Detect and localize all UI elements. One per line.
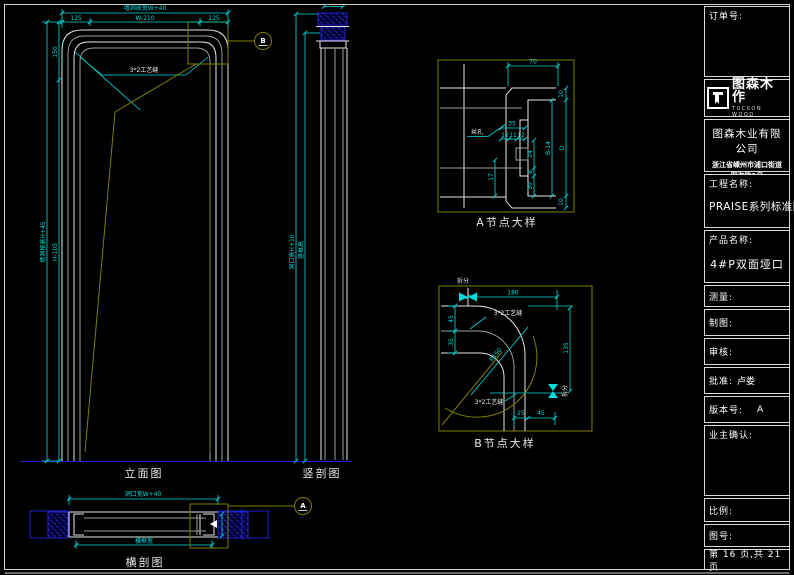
product-row: 产品名称: 4#P双面垭口 [704, 230, 790, 283]
drawing-area: B 墙洞按宽W+40 125 W-210 125 墙洞按高H+45 150 H-… [0, 0, 794, 575]
cross-section-view: A 洞口宽W+40 横框宽 横剖图 [30, 490, 312, 569]
dim-right-seg: 125 [208, 15, 220, 22]
dim-10-top: 10 [558, 90, 565, 98]
detail-b-view: 拆分 拆分 180 45 35 R150 135 25 45 3*2工艺缝 3*… [439, 277, 592, 450]
company-name: 图森木业有限公司 [709, 126, 785, 156]
dim-d: D [559, 145, 566, 150]
dim-17: 17 [488, 173, 495, 181]
dim-wall-height: 墙洞按高H+45 [39, 221, 47, 262]
scale-label: 比例: [709, 504, 733, 517]
brand-name: 图森木作 [732, 78, 787, 104]
dim-35: 35 [508, 121, 516, 128]
split-label-top: 拆分 [457, 277, 469, 285]
sheet-border [5, 5, 790, 574]
dim-opening-width: 洞口宽W+40 [125, 490, 162, 498]
scale-row: 比例: [704, 498, 790, 522]
seam-note: 3*2工艺缝 [130, 66, 159, 74]
cross-section-label: 横剖图 [126, 555, 165, 569]
project-label: 工程名称: [709, 180, 753, 190]
version-row: 版本号: A [704, 396, 790, 423]
detail-b-label: B节点大样 [474, 436, 536, 450]
cad-drawing-page: B 墙洞按宽W+40 125 W-210 125 墙洞按高H+45 150 H-… [0, 0, 794, 575]
approve-value: 卢娄 [737, 374, 755, 387]
measure-row: 测量: [704, 285, 790, 307]
dim-wall-width: 墙洞按宽W+40 [124, 4, 167, 12]
measure-label: 测量: [709, 290, 733, 303]
version-label: 版本号: [709, 403, 743, 416]
drawing-number-row: 图号: [704, 524, 790, 547]
review-row: 审核: [704, 338, 790, 365]
review-label: 审核: [709, 345, 733, 358]
seam-note-top: 3*2工艺缝 [494, 309, 523, 317]
dim-frame-width: 横框宽 [135, 537, 153, 545]
dim-opening-height: 洞口高H+10 [288, 234, 296, 269]
dim-45-left: 45 [448, 315, 455, 323]
dim-25: 25 [517, 410, 525, 417]
page-number-text: 第 16 页,共 21 页 [709, 547, 785, 573]
owner-confirm-label: 业主确认: [709, 431, 753, 441]
product-value: 4#P双面垭口 [709, 256, 785, 272]
approve-row: 批准: 卢娄 [704, 367, 790, 394]
title-block: 订单号: 图森木作 TUCSON WOOD 图森木业有限公司 浙江省嵊州市浦口街… [704, 0, 790, 575]
dim-mid-seg: W-210 [135, 15, 154, 22]
dim-35-left: 35 [448, 338, 455, 346]
brand-subtitle: TUCSON WOOD [732, 106, 787, 118]
elevation-label: 立面图 [125, 466, 164, 480]
dim-8: 8 [527, 170, 534, 174]
dimension-ticks [45, 4, 572, 547]
company-row: 图森木业有限公司 浙江省嵊州市浦口街道 四海路1号 [704, 119, 790, 172]
detail-a-label: A节点大样 [476, 215, 538, 229]
dim-radius: R150 [488, 347, 503, 364]
dim-45-bottom: 45 [537, 410, 545, 417]
page-number-row: 第 16 页,共 21 页 [704, 549, 790, 570]
detail-a-view: 70 D 10 10 B-14 35 12 11 12 17 24 8 30 丝… [438, 59, 574, 230]
seam-note-bottom: 3*2工艺缝 [475, 398, 504, 406]
draft-label: 制图: [709, 316, 733, 329]
version-value: A [757, 405, 763, 415]
dim-top-seg: 150 [52, 46, 59, 58]
dim-70: 70 [529, 59, 537, 66]
dim-30: 30 [527, 182, 534, 190]
logo-row: 图森木作 TUCSON WOOD [704, 79, 790, 117]
vertical-section-label: 竖剖图 [303, 466, 342, 480]
leader-note-sikong: 丝孔 [471, 128, 483, 136]
dim-b14: B-14 [545, 141, 552, 155]
approve-label: 批准: [709, 374, 733, 387]
tucson-wood-logo-icon [707, 87, 729, 109]
dim-frame-height: 竖框高 [297, 241, 305, 259]
product-label: 产品名称: [709, 236, 753, 246]
drawing-number-label: 图号: [709, 529, 733, 542]
draft-row: 制图: [704, 309, 790, 336]
dim-10-bottom: 10 [558, 198, 565, 206]
project-row: 工程名称: PRAISE系列标准图 [704, 174, 790, 228]
project-value: PRAISE系列标准图 [709, 199, 785, 214]
dim-135: 135 [563, 342, 570, 354]
order-number-label: 订单号: [709, 12, 743, 22]
dim-main-seg: H-105 [52, 243, 59, 261]
vertical-section-view: 洞口高H+10 竖框高 竖剖图 [288, 7, 349, 481]
callout-a-letter: A [300, 502, 306, 510]
owner-confirm-row: 业主确认: [704, 425, 790, 496]
company-address-line1: 浙江省嵊州市浦口街道 [709, 160, 785, 171]
order-number-row: 订单号: [704, 6, 790, 77]
callout-b-letter: B [260, 37, 265, 45]
dim-24: 24 [527, 150, 534, 158]
dim-left-seg: 125 [70, 15, 82, 22]
dim-180: 180 [507, 290, 519, 297]
split-label-side: 拆分 [561, 385, 569, 397]
